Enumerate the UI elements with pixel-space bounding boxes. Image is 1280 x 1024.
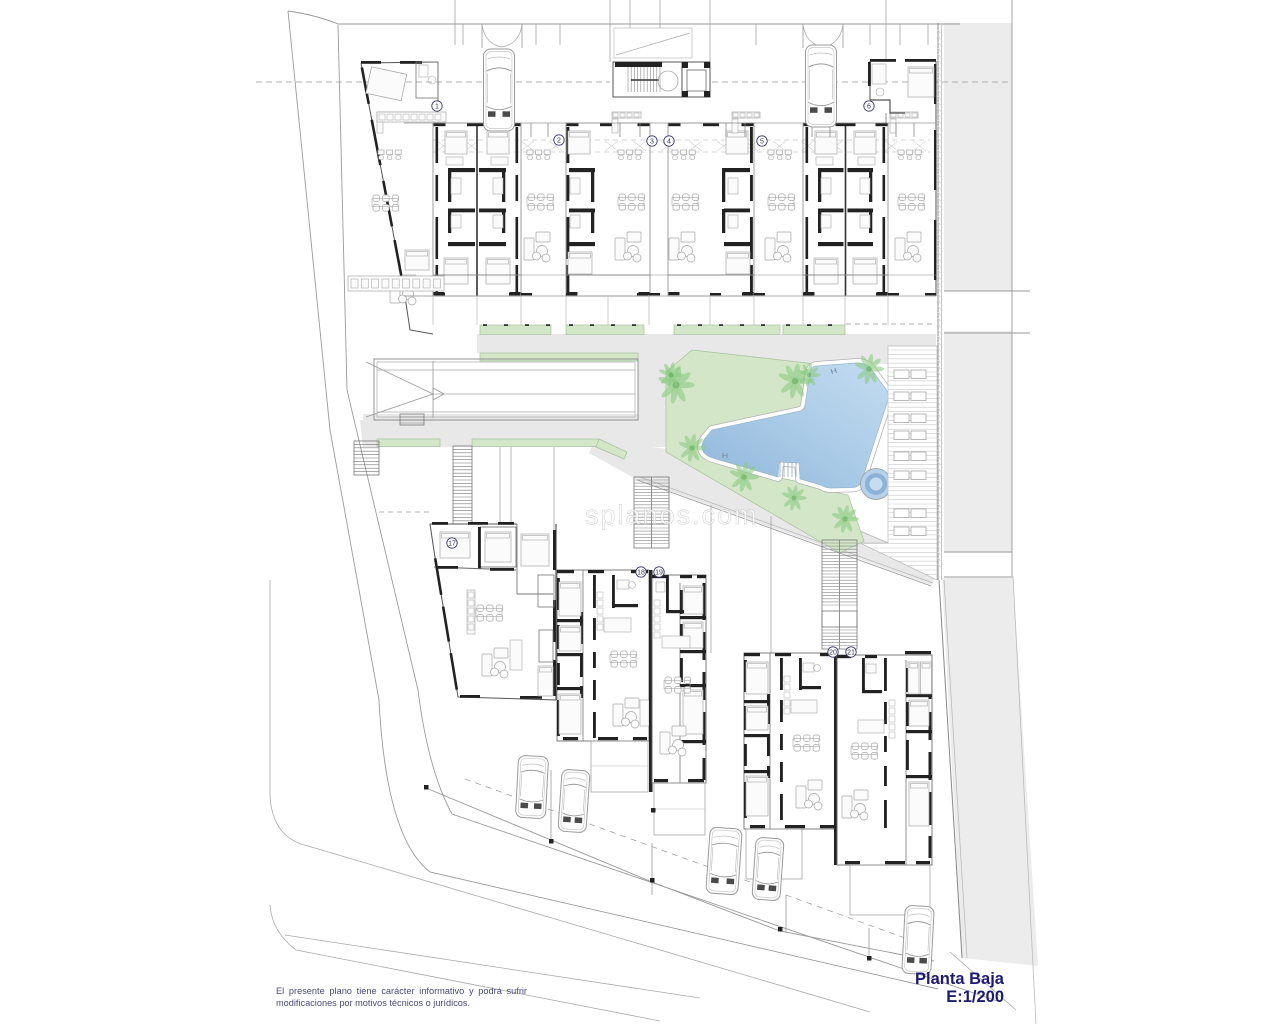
svg-text:E:1/200: E:1/200: [946, 988, 1004, 1006]
svg-text:Planta Baja: Planta Baja: [915, 970, 1005, 988]
svg-text:2: 2: [557, 138, 561, 145]
svg-text:21: 21: [847, 650, 855, 657]
svg-text:El presente plano tiene ca: El presente plano tiene carácter informa…: [276, 986, 527, 996]
svg-text:splanos.com: splanos.com: [585, 500, 759, 530]
svg-text:17: 17: [448, 541, 456, 548]
svg-text:4: 4: [667, 139, 671, 146]
svg-text:20: 20: [829, 650, 837, 657]
svg-text:1: 1: [435, 104, 439, 111]
svg-text:18: 18: [637, 570, 645, 577]
svg-text:3: 3: [650, 139, 654, 146]
svg-text:5: 5: [760, 139, 764, 146]
svg-text:6: 6: [867, 104, 871, 111]
svg-text:19: 19: [655, 570, 663, 577]
svg-text:modificaciones por motivos téc: modificaciones por motivos técnicos o ju…: [276, 998, 470, 1008]
